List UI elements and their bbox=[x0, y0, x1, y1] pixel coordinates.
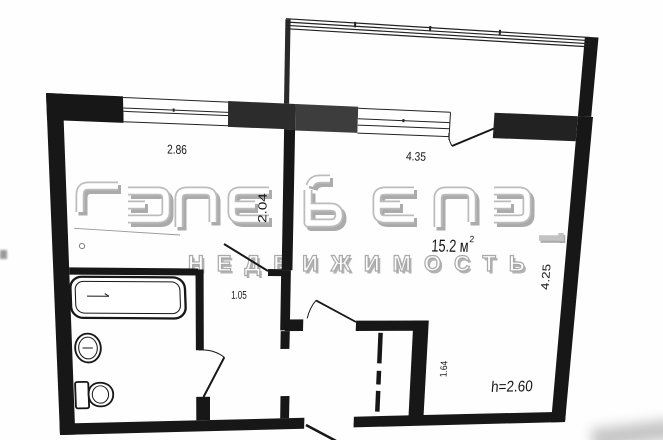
svg-text:4.25: 4.25 bbox=[539, 264, 554, 290]
svg-text:1.05: 1.05 bbox=[231, 290, 247, 302]
svg-text:2: 2 bbox=[469, 234, 474, 244]
svg-text:h=2.60: h=2.60 bbox=[490, 378, 533, 396]
svg-text:2.04: 2.04 bbox=[255, 193, 269, 223]
svg-text:2.86: 2.86 bbox=[167, 142, 187, 157]
svg-text:15.2 м: 15.2 м bbox=[431, 236, 469, 256]
svg-text:1.64: 1.64 bbox=[439, 360, 451, 377]
svg-text:4.35: 4.35 bbox=[406, 150, 427, 164]
